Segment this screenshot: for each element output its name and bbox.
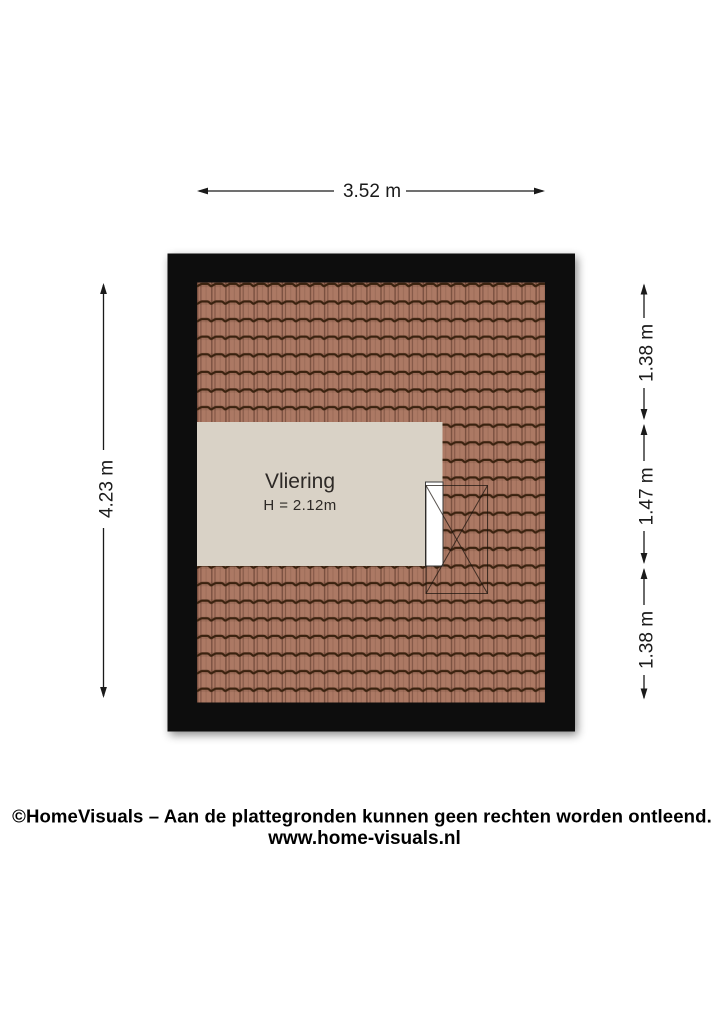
- svg-text:H = 2.12m: H = 2.12m: [263, 497, 336, 514]
- svg-text:4.23 m: 4.23 m: [97, 460, 118, 518]
- svg-text:1.38 m: 1.38 m: [637, 611, 658, 669]
- svg-text:1.47 m: 1.47 m: [637, 467, 658, 525]
- svg-text:Vliering: Vliering: [265, 470, 335, 493]
- svg-text:3.52 m: 3.52 m: [343, 181, 401, 202]
- svg-text:1.38 m: 1.38 m: [637, 324, 658, 382]
- svg-text:www.home-visuals.nl: www.home-visuals.nl: [267, 828, 461, 849]
- svg-text:©HomeVisuals – Aan de plattegr: ©HomeVisuals – Aan de plattegronden kunn…: [12, 806, 712, 827]
